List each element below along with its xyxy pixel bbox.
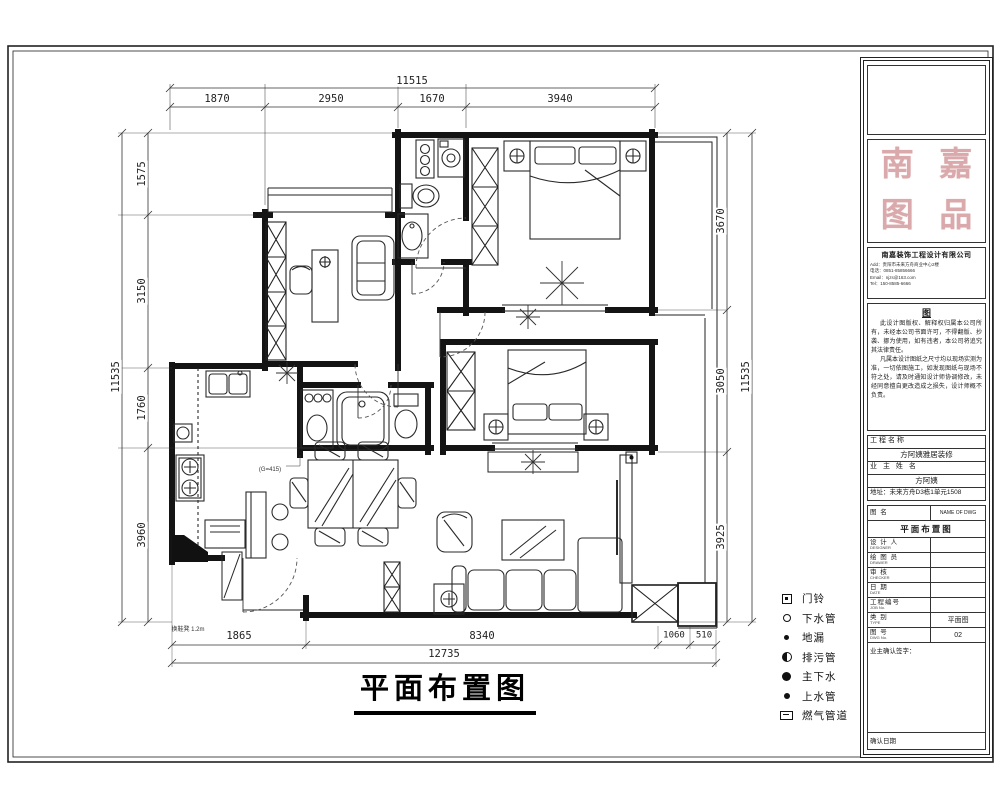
dwg-label-row: 图 名 NAME OF DWG <box>868 506 985 521</box>
doorbell-icon <box>780 594 793 604</box>
meter-note: (G=415) <box>259 467 281 473</box>
legend-label: 排污管 <box>802 650 837 665</box>
dim-bottom-1: 1865 <box>225 631 252 642</box>
company-tel: Tel：150-8585-6666 <box>870 281 983 287</box>
legend-item: 主下水 <box>780 670 866 683</box>
project-name-label: 工程名称 <box>868 436 985 449</box>
gas-pipeline-icon <box>780 711 793 720</box>
legend-item: 地漏 <box>780 631 866 644</box>
dim-right-1: 3670 <box>716 207 727 234</box>
legend-label: 下水管 <box>802 611 837 626</box>
dim-right-3: 3925 <box>716 523 727 550</box>
drawing-title-text: 平面布置图 <box>354 674 536 715</box>
water-supply-icon <box>780 693 793 699</box>
seal-character: 品 <box>939 200 972 233</box>
legend-label: 燃气管道 <box>802 708 848 723</box>
table-row: 图 号DWG No. 02 <box>868 628 985 643</box>
legend-label: 门铃 <box>802 591 825 606</box>
notes-paragraph: 凡属本设计图纸之尺寸均以现场实测为准，一切依图施工，如发现图纸与现场不符之处，请… <box>871 356 982 401</box>
dim-bottom-2: 8340 <box>468 631 495 642</box>
floor-drain-icon <box>780 635 793 640</box>
dim-top-2: 2950 <box>317 94 344 105</box>
dwg-label: 图 名 <box>870 510 928 517</box>
legend-label: 主下水 <box>802 669 837 684</box>
drawing-title: 平面布置图 <box>330 674 560 715</box>
table-row: 日 期DATE <box>868 583 985 598</box>
legend-item: 下水管 <box>780 612 866 625</box>
sewage-pipe-icon <box>780 652 793 662</box>
dim-top-total: 11515 <box>395 76 429 87</box>
owner-name-label: 业 主 姓 名 <box>868 462 985 475</box>
dim-left-total: 11535 <box>111 360 122 394</box>
table-row: 绘 图 员DRAWER <box>868 553 985 568</box>
main-drain-icon <box>780 672 793 681</box>
seal-character: 嘉 <box>939 149 972 182</box>
dim-right-total: 11535 <box>741 360 752 394</box>
drain-pipe-icon <box>780 614 793 622</box>
project-address: 地址：未来方舟D3栋1单元1508 <box>868 488 985 500</box>
dim-bottom-4: 510 <box>695 632 713 641</box>
table-row: 审 核CHECKER <box>868 568 985 583</box>
legend-item: 燃气管道 <box>780 709 866 722</box>
legend: 门铃 下水管 地漏 排污管 主下水 上水管 燃气管道 <box>780 592 866 722</box>
dim-left-2: 3150 <box>137 277 148 304</box>
row-value: 02 <box>931 632 985 639</box>
furniture <box>172 139 646 614</box>
row-label-en: DATE <box>870 591 928 595</box>
project-name: 方阿姨雅居装修 <box>868 449 985 462</box>
dim-bottom-total: 12735 <box>427 649 461 660</box>
dim-left-4: 3960 <box>137 521 148 548</box>
seal-character: 南 <box>881 149 914 182</box>
row-label-en: CHECKER <box>870 576 928 580</box>
dwg-name-row: 平面布置图 <box>868 521 985 538</box>
dimension-lines <box>118 84 756 667</box>
walls <box>172 132 655 618</box>
title-block-panel: 南 嘉 图 品 南嘉装饰工程设计有限公司 Add：贵阳市未来方舟商业中心2楼 电… <box>860 57 993 758</box>
owner-signature-box: 业主确认签字： <box>868 643 985 733</box>
blank-box <box>867 65 986 135</box>
row-label-en: DRAWER <box>870 561 928 565</box>
dim-top-1: 1870 <box>203 94 230 105</box>
row-label-en: DWG No. <box>870 636 928 640</box>
dwg-label-en: NAME OF DWG <box>931 510 985 516</box>
dim-left-3: 1760 <box>137 394 148 421</box>
title-block-inner: 南 嘉 图 品 南嘉装饰工程设计有限公司 Add：贵阳市未来方舟商业中心2楼 电… <box>863 60 990 755</box>
owner-signature-label: 业主确认签字： <box>870 648 916 655</box>
company-name: 南嘉装饰工程设计有限公司 <box>870 250 983 260</box>
row-label-en: DESIGNER <box>870 546 928 550</box>
dim-left-1: 1575 <box>137 160 148 187</box>
door-swings <box>243 218 485 612</box>
dim-bottom-3: 1060 <box>662 632 686 641</box>
seal-character: 图 <box>881 200 914 233</box>
company-info: 南嘉装饰工程设计有限公司 Add：贵阳市未来方舟商业中心2楼 电话：0851-8… <box>867 247 986 299</box>
row-label-en: JOB No. <box>870 606 928 610</box>
dim-right-2: 3050 <box>716 367 727 394</box>
drawing-info-table: 图 名 NAME OF DWG 平面布置图 设 计 人DESIGNER 绘 图 … <box>867 505 986 750</box>
legend-item: 排污管 <box>780 651 866 664</box>
dwg-name: 平面布置图 <box>900 523 953 535</box>
legend-label: 地漏 <box>802 630 825 645</box>
legend-item: 上水管 <box>780 690 866 703</box>
notes-section: 图 此设计图版权、解释权归属本公司所有，未经本公司书面许可，不得翻版、抄袭、挪为… <box>867 303 986 431</box>
row-value: 平面图 <box>931 615 985 625</box>
confirm-date-label: 确认日期 <box>870 738 896 745</box>
entry-bench-note: 换鞋凳 1.2m <box>171 627 204 633</box>
project-info: 工程名称 方阿姨雅居装修 业 主 姓 名 方阿姨 地址：未来方舟D3栋1单元15… <box>867 435 986 501</box>
legend-label: 上水管 <box>802 689 837 704</box>
table-row: 类 别TYPE 平面图 <box>868 613 985 628</box>
company-seal: 南 嘉 图 品 <box>867 139 986 243</box>
table-row: 设 计 人DESIGNER <box>868 538 985 553</box>
row-label-en: TYPE <box>870 621 928 625</box>
notes-header: 图 <box>871 306 982 319</box>
table-row: 工程编号JOB No. <box>868 598 985 613</box>
dim-top-4: 3940 <box>546 94 573 105</box>
notes-paragraph: 此设计图版权、解释权归属本公司所有，未经本公司书面许可，不得翻版、抄袭、挪为使用… <box>871 320 982 356</box>
dim-top-3: 1670 <box>418 94 445 105</box>
drawing-sheet: 1870 2950 1670 3940 11515 1575 3150 1760… <box>0 0 1000 800</box>
owner-name: 方阿姨 <box>868 475 985 488</box>
legend-item: 门铃 <box>780 592 866 605</box>
confirm-date-row: 确认日期 <box>868 733 985 749</box>
